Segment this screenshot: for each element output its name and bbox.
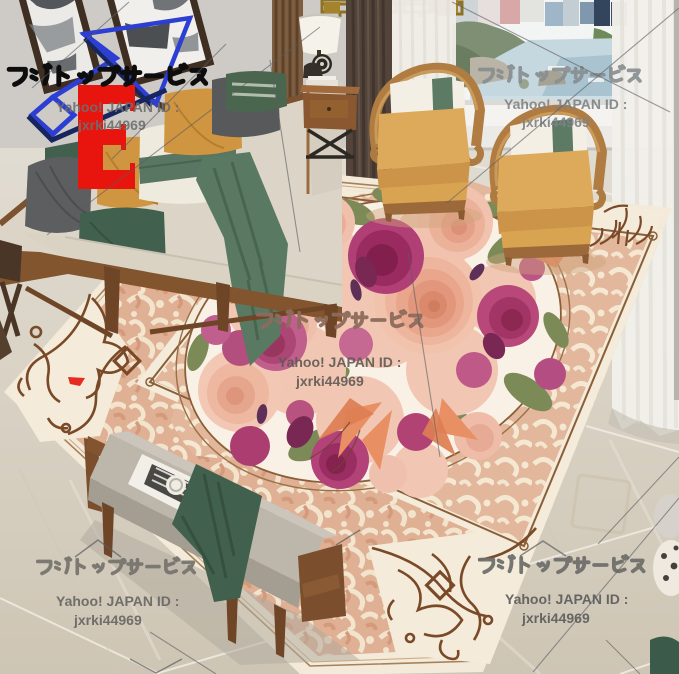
svg-text:Yahoo! JAPAN ID :: Yahoo! JAPAN ID : [278,354,401,370]
svg-text:Yahoo! JAPAN ID :: Yahoo! JAPAN ID : [505,591,628,607]
svg-text:Yahoo! JAPAN ID :: Yahoo! JAPAN ID : [56,593,179,609]
svg-text:jxrki44969: jxrki44969 [295,373,364,389]
svg-text:jxrki44969: jxrki44969 [77,117,146,133]
svg-text:Yahoo! JAPAN ID :: Yahoo! JAPAN ID : [504,96,627,112]
svg-text:jxrki44969: jxrki44969 [73,612,142,628]
svg-text:jxrki44969: jxrki44969 [521,610,590,626]
svg-text:jxrki44969: jxrki44969 [521,114,590,130]
svg-text:Yahoo! JAPAN ID :: Yahoo! JAPAN ID : [56,99,179,115]
